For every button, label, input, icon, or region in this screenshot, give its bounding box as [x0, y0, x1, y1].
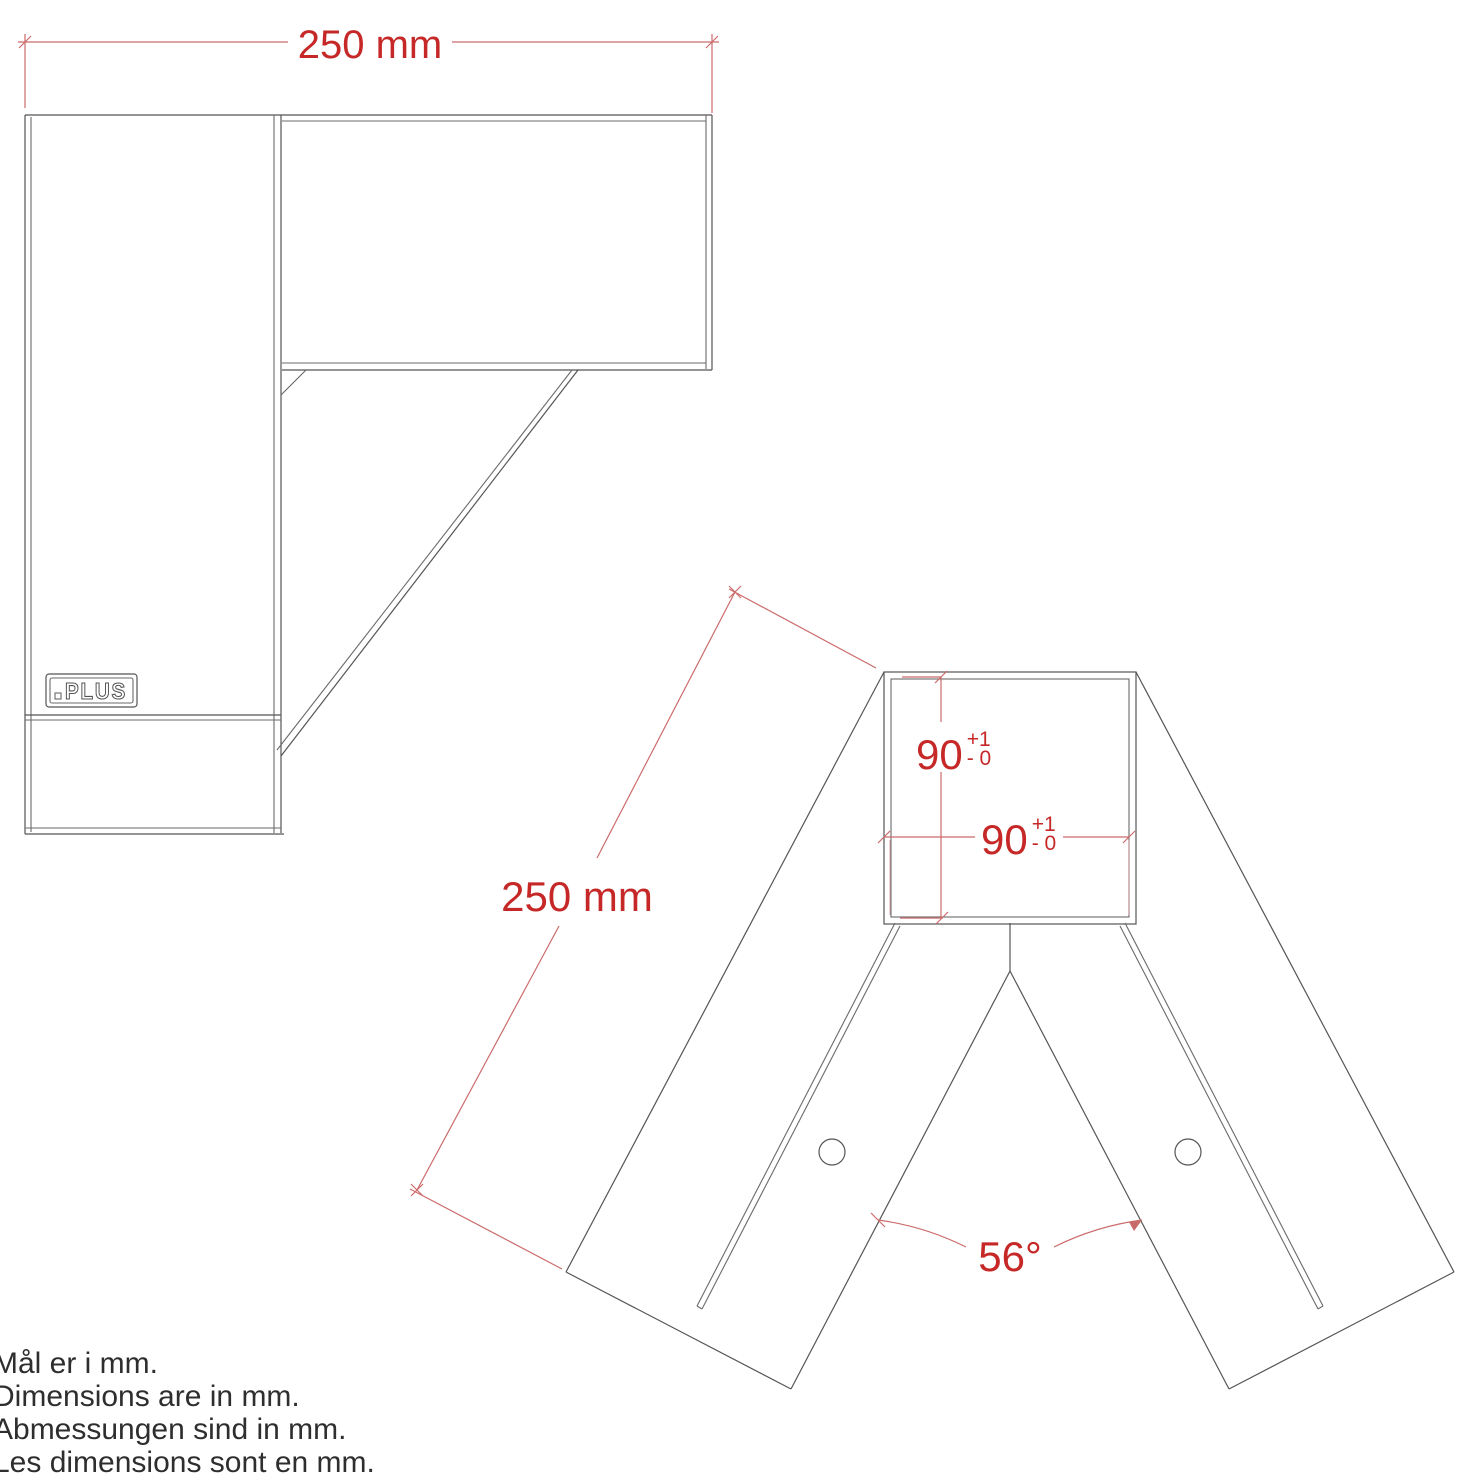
note-line-french: Les dimensions sont en mm.: [0, 1446, 375, 1479]
tolerance-stack: +1 - 0: [1032, 815, 1057, 853]
dim-value-inner-height: 90: [916, 734, 963, 776]
dim-label-inner-width-90: 90 +1 - 0: [981, 819, 1056, 861]
dim-label-inner-height-90: 90 +1 - 0: [916, 734, 991, 776]
tolerance-lower: - 0: [967, 749, 992, 768]
technical-drawing: PLUS: [0, 0, 1460, 1460]
front-view-legs: [566, 672, 1454, 1389]
side-view-outline: [25, 115, 712, 834]
front-view-socket: [884, 672, 1136, 924]
note-line-danish: Mål er i mm.: [0, 1347, 375, 1380]
dim-label-leg-length-250mm: 250 mm: [500, 876, 654, 918]
note-line-english: Dimensions are in mm.: [0, 1380, 375, 1413]
dim-label-width-250mm: 250 mm: [292, 25, 448, 65]
slot-left-leg: [697, 923, 900, 1309]
dim-label-angle-56deg: 56°: [970, 1236, 1050, 1278]
technical-drawing-canvas: PLUS: [0, 0, 1460, 1460]
dimension-250mm-leg: [410, 586, 876, 1269]
tolerance-lower: - 0: [1032, 834, 1057, 853]
tolerance-stack: +1 - 0: [967, 730, 992, 768]
plus-logo-text: PLUS: [65, 678, 127, 704]
side-view-diagonal-brace: [277, 370, 578, 756]
bolt-hole-right: [1175, 1139, 1201, 1165]
plus-logo: PLUS: [46, 674, 137, 707]
slot-right-leg: [1120, 923, 1323, 1309]
bolt-hole-left: [819, 1139, 845, 1165]
note-line-german: Abmessungen sind in mm.: [0, 1413, 375, 1446]
dimension-90-vertical: [900, 671, 948, 924]
notes-block: Mål er i mm. Dimensions are in mm. Abmes…: [0, 1347, 375, 1479]
dim-value-inner-width: 90: [981, 819, 1028, 861]
